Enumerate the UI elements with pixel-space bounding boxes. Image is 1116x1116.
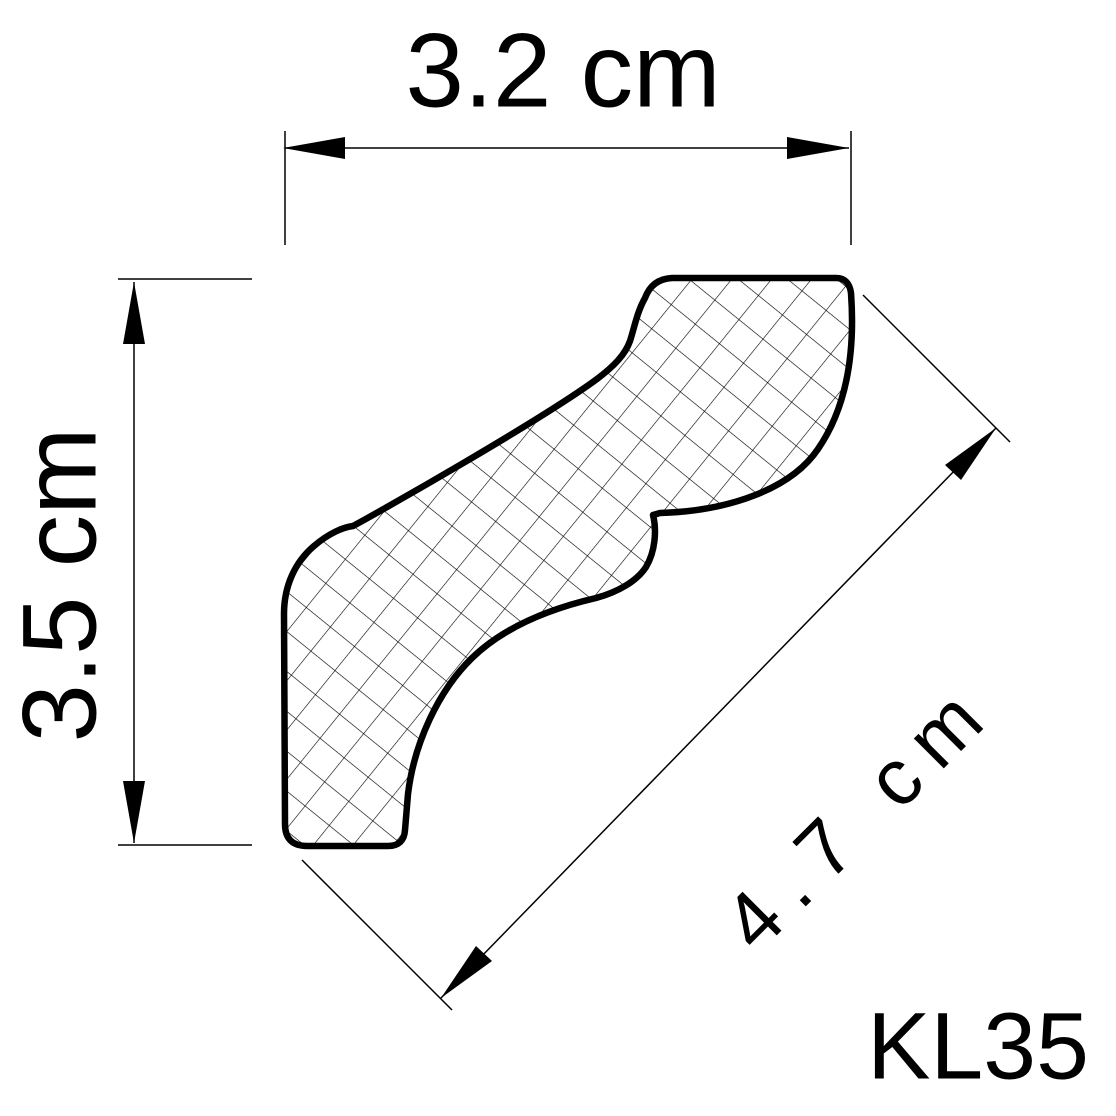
product-code-label: KL35 [867,1000,1089,1095]
dimension-drawing-canvas: 3.2 cm 3.5 cm 4.7 cm KL35 [0,0,1116,1116]
width-dimension-label: 3.2 cm [405,19,720,124]
profile-drawing [0,0,1116,1116]
height-dimension-label: 3.5 cm [8,427,113,742]
